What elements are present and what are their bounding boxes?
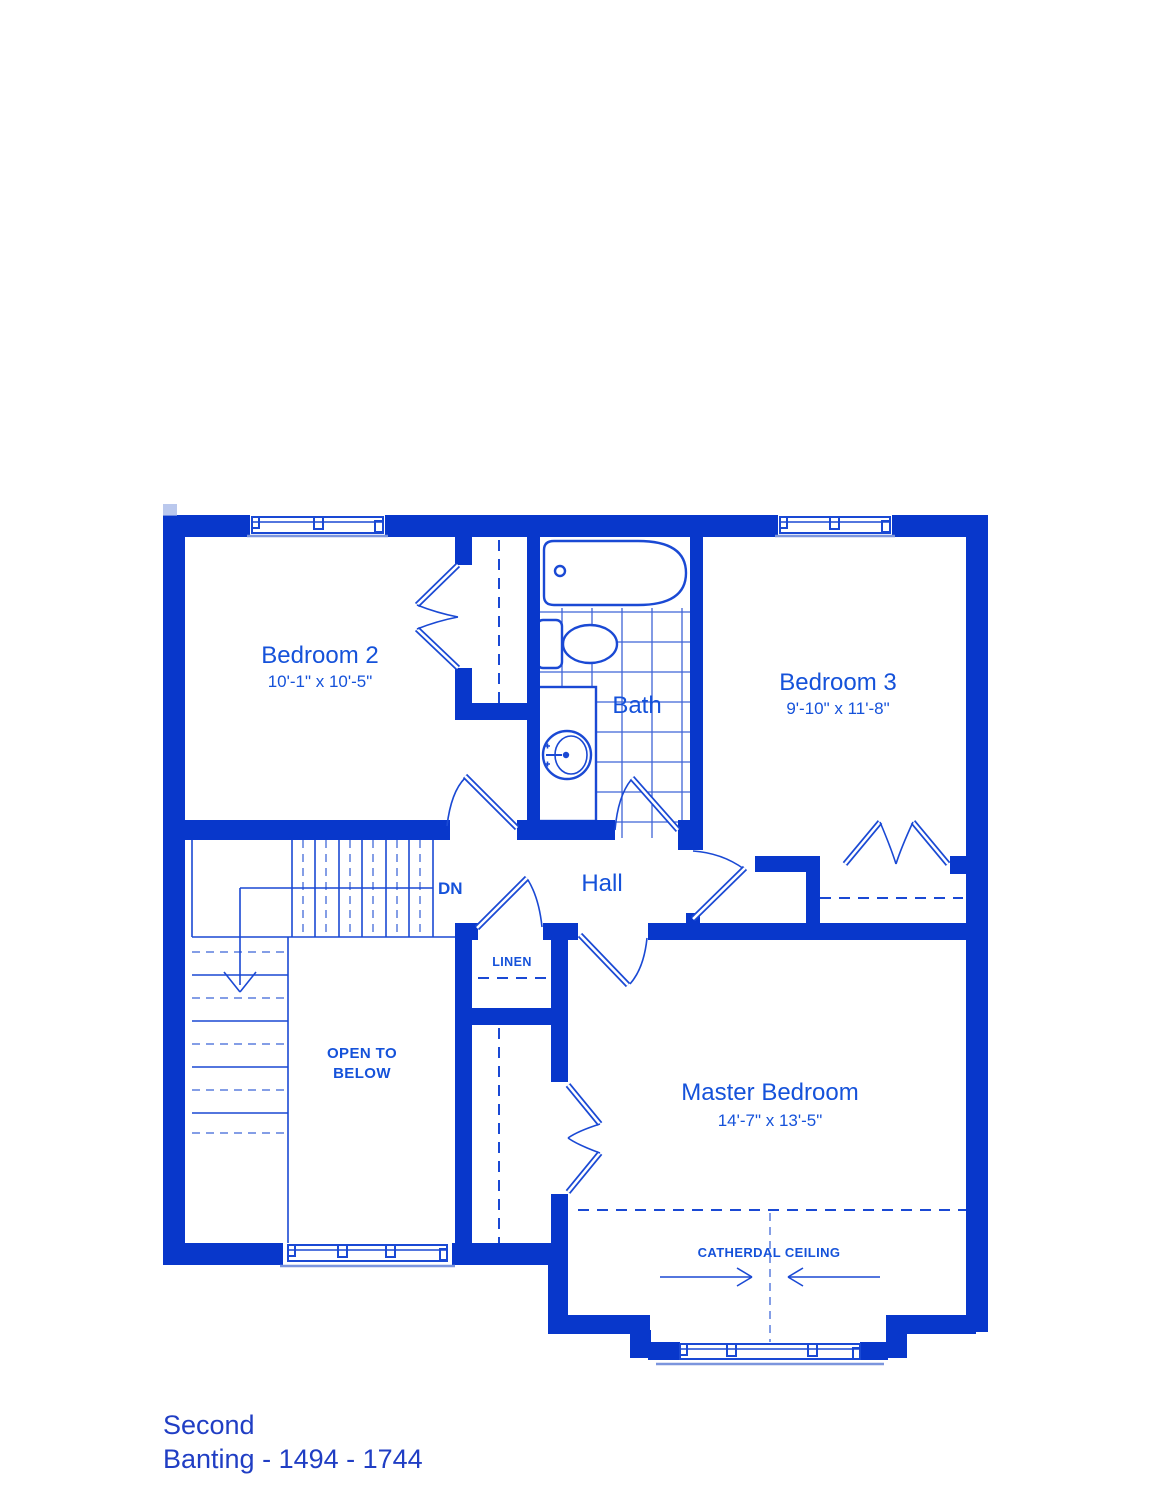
window-bedroom2 [247,515,388,537]
window-bay-master [656,1342,884,1364]
window-lower-left [280,1243,455,1266]
room-label-bedroom3: Bedroom 3 [779,669,896,696]
open-to-below-label-line1: OPEN TO [327,1045,397,1062]
floor-plan-page: Bedroom 2 10'-1" x 10'-5" Bedroom 3 9'-1… [0,0,1159,1500]
linen-label: LINEN [492,955,532,969]
room-dims-bedroom3: 9'-10" x 11'-8" [786,699,889,718]
down-arrow [224,888,256,992]
door-bedroom2 [447,776,517,828]
room-dims-bedroom2: 10'-1" x 10'-5" [268,672,373,691]
stairs [192,840,455,1243]
floor-plan-canvas: Bedroom 2 10'-1" x 10'-5" Bedroom 3 9'-1… [0,0,1159,1500]
open-to-below-label-line2: BELOW [333,1065,391,1082]
bathtub [544,541,686,605]
room-label-hall: Hall [581,870,622,897]
bifold-closet-master [568,1085,600,1192]
room-label-bedroom2: Bedroom 2 [261,642,378,669]
door-bedroom3 [693,851,745,919]
bifold-closet-bedroom2 [417,565,458,668]
room-label-master: Master Bedroom [681,1079,858,1106]
stairs-dn-label: DN [438,879,463,898]
plan-footer-floor: Second [163,1408,423,1442]
room-label-bath: Bath [612,692,661,719]
plan-footer-model: Banting - 1494 - 1744 [163,1442,423,1476]
vanity-sink [537,687,596,821]
toilet [537,620,617,668]
window-bedroom3 [775,515,895,537]
cathedral-ceiling-label: CATHERDAL CEILING [698,1245,841,1260]
plan-footer: Second Banting - 1494 - 1744 [163,1408,423,1476]
room-dims-master: 14'-7" x 13'-5" [718,1111,823,1130]
bifold-closet-bedroom3 [845,822,948,864]
door-master [580,935,647,985]
door-linen [477,878,542,928]
